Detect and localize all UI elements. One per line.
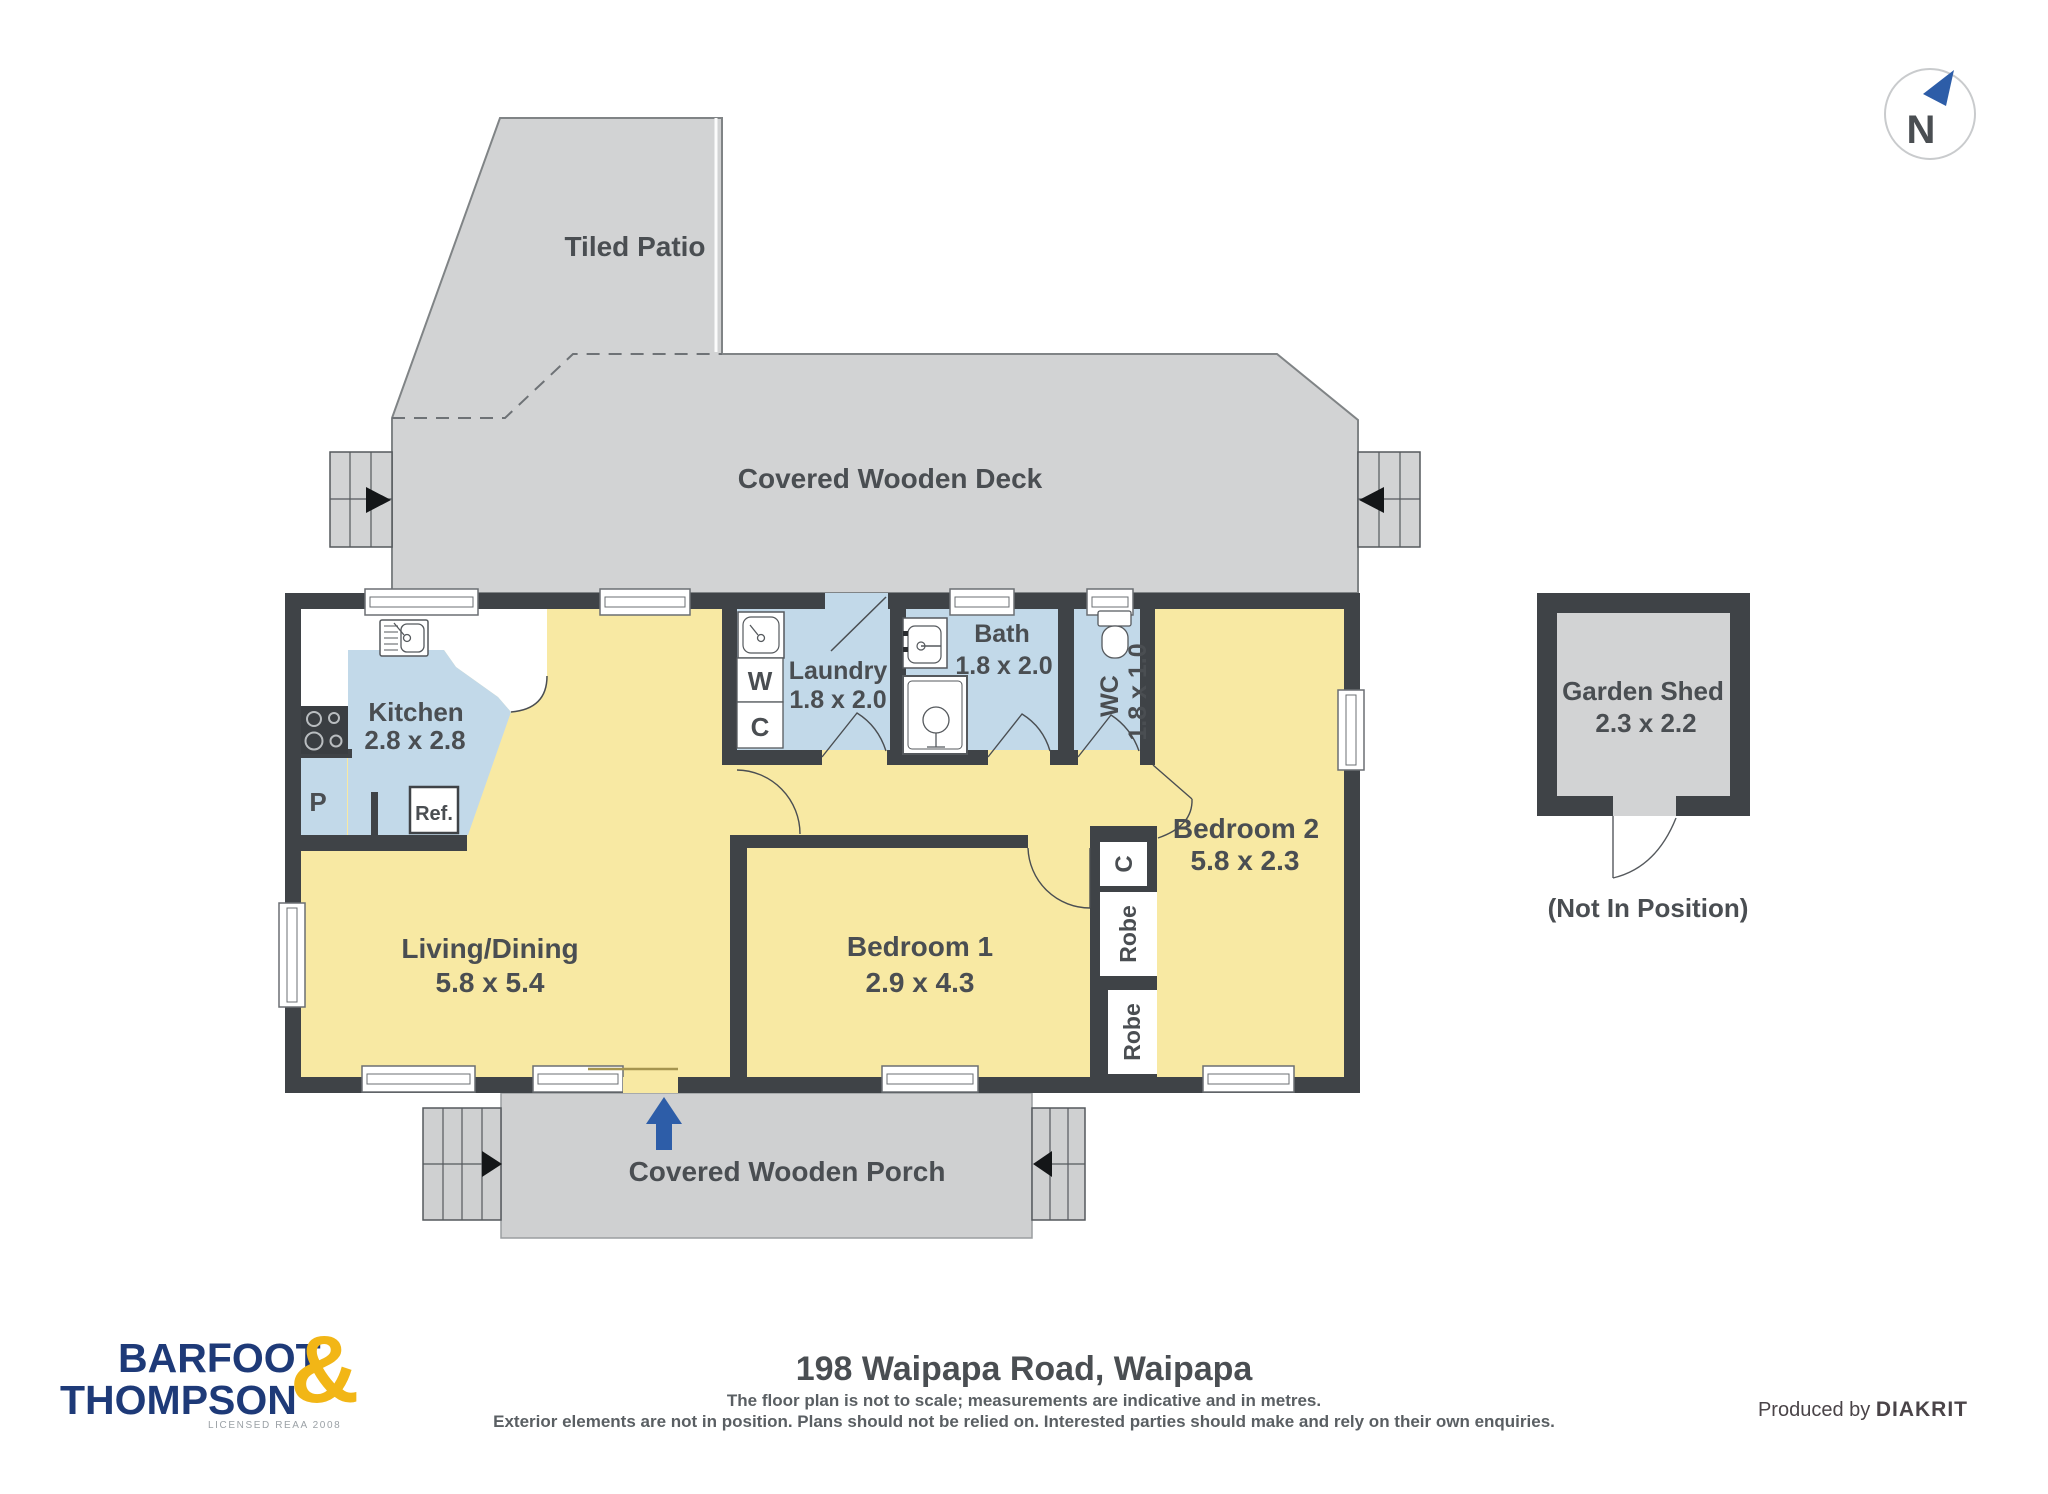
bath-vanity-icon bbox=[903, 618, 947, 668]
floorplan-page: Tiled Patio Covered Wooden Deck Covered … bbox=[0, 0, 2048, 1494]
patio-deck-outline bbox=[392, 118, 1358, 593]
garden-shed: Garden Shed 2.3 x 2.2 (Not In Position) bbox=[1537, 593, 1750, 923]
robe1-label: Robe bbox=[1115, 905, 1141, 963]
bath-name-label: Bath bbox=[974, 620, 1030, 648]
laundry-cupboard-label: C bbox=[751, 712, 770, 742]
window-right-bedroom2 bbox=[1338, 690, 1364, 770]
deck-stairs-right bbox=[1358, 452, 1420, 547]
washer-label: W bbox=[748, 666, 773, 696]
porch-stairs-right bbox=[1032, 1108, 1085, 1220]
hall-cupboard-label: C bbox=[1111, 855, 1138, 872]
disclaimer-line-1: The floor plan is not to scale; measurem… bbox=[0, 1391, 2048, 1411]
bedroom2-name-label: Bedroom 2 bbox=[1173, 813, 1319, 844]
fridge-label: Ref. bbox=[415, 803, 453, 825]
window-bottom-bedroom1 bbox=[882, 1066, 978, 1092]
shed-name-label: Garden Shed bbox=[1562, 676, 1724, 706]
porch-area: Covered Wooden Porch bbox=[423, 1093, 1085, 1238]
produced-by-prefix: Produced by bbox=[1758, 1399, 1870, 1421]
laundry-dims-label: 1.8 x 2.0 bbox=[789, 686, 886, 714]
laundry-name-label: Laundry bbox=[789, 657, 888, 685]
patio-label: Tiled Patio bbox=[564, 231, 705, 262]
laundry-tub-icon bbox=[738, 612, 784, 658]
window-top-bath bbox=[950, 589, 1014, 615]
porch-stairs-left bbox=[423, 1108, 502, 1220]
disclaimer-line-2: Exterior elements are not in position. P… bbox=[0, 1412, 2048, 1432]
north-compass: N bbox=[1885, 69, 1975, 159]
window-bottom-bedroom2 bbox=[1203, 1066, 1294, 1092]
porch-label: Covered Wooden Porch bbox=[629, 1156, 946, 1187]
laundry-door-opening bbox=[825, 593, 888, 609]
living-dims-label: 5.8 x 5.4 bbox=[436, 967, 545, 998]
deck-stairs-left bbox=[330, 452, 392, 547]
window-top-kitchen bbox=[365, 589, 478, 615]
bath-dims-label: 1.8 x 2.0 bbox=[955, 652, 1052, 680]
shed-note-label: (Not In Position) bbox=[1548, 893, 1749, 923]
bedroom1-name-label: Bedroom 1 bbox=[847, 931, 993, 962]
wc-name-label: WC bbox=[1096, 675, 1124, 717]
diakrit-brand: DIAKRIT bbox=[1876, 1398, 1968, 1421]
shed-door-opening bbox=[1613, 796, 1676, 816]
compass-n-label: N bbox=[1907, 108, 1936, 152]
pantry-label: P bbox=[309, 787, 326, 817]
bedroom2-dims-label: 5.8 x 2.3 bbox=[1191, 845, 1300, 876]
living-name-label: Living/Dining bbox=[401, 933, 578, 964]
produced-by: Produced by DIAKRIT bbox=[1758, 1398, 1968, 1422]
window-top-living bbox=[600, 589, 690, 615]
house: C Robe Robe bbox=[279, 589, 1364, 1093]
kitchen-dims-label: 2.8 x 2.8 bbox=[364, 725, 465, 755]
kitchen-sink-icon bbox=[380, 620, 428, 656]
window-left-living bbox=[279, 903, 305, 1007]
shower-icon bbox=[903, 676, 967, 754]
shed-door-swing bbox=[1613, 816, 1676, 878]
deck-label: Covered Wooden Deck bbox=[738, 463, 1043, 494]
robe-column: C Robe Robe bbox=[1090, 826, 1157, 1077]
bedroom1-dims-label: 2.9 x 4.3 bbox=[866, 967, 975, 998]
stove-icon bbox=[301, 706, 348, 754]
robe2-label: Robe bbox=[1119, 1003, 1145, 1061]
shed-dims-label: 2.3 x 2.2 bbox=[1595, 708, 1696, 738]
address-title: 198 Waipapa Road, Waipapa bbox=[0, 1350, 2048, 1389]
window-bottom-living-1 bbox=[362, 1066, 475, 1092]
entry-opening bbox=[623, 1077, 678, 1093]
wc-dims-label: 1.8 x 1.0 bbox=[1124, 643, 1152, 740]
patio-deck-area: Tiled Patio Covered Wooden Deck bbox=[330, 118, 1420, 593]
floorplan-drawing: Tiled Patio Covered Wooden Deck Covered … bbox=[0, 0, 2048, 1494]
kitchen-name-label: Kitchen bbox=[368, 697, 463, 727]
